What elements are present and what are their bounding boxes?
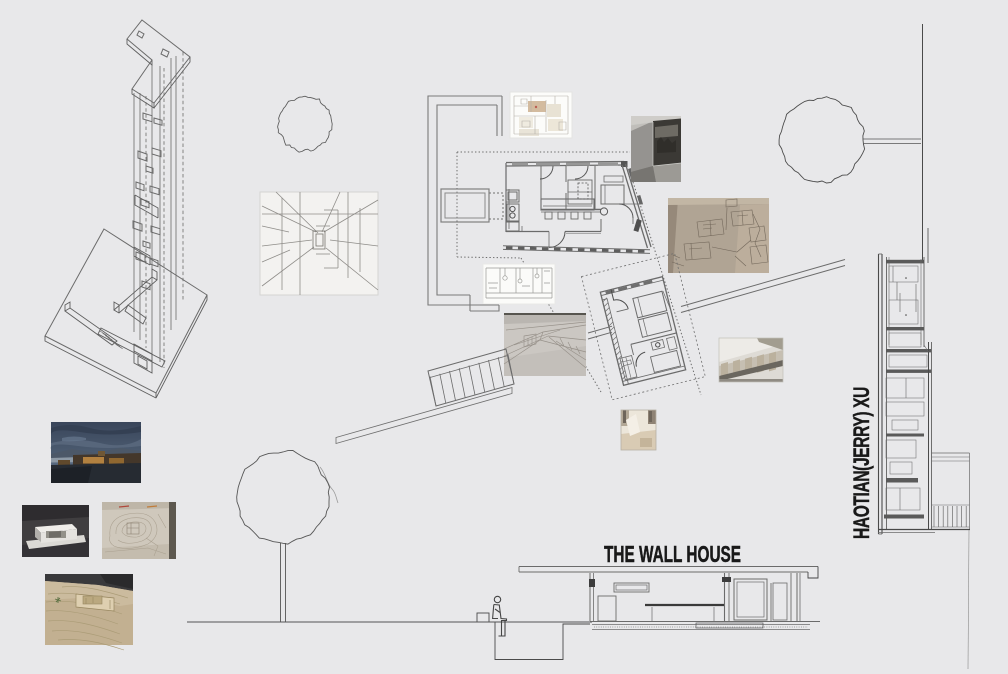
svg-text:THE WALL HOUSE: THE WALL HOUSE (604, 541, 741, 567)
svg-text:HAOTIAN(JERRY) XU: HAOTIAN(JERRY) XU (849, 387, 874, 539)
